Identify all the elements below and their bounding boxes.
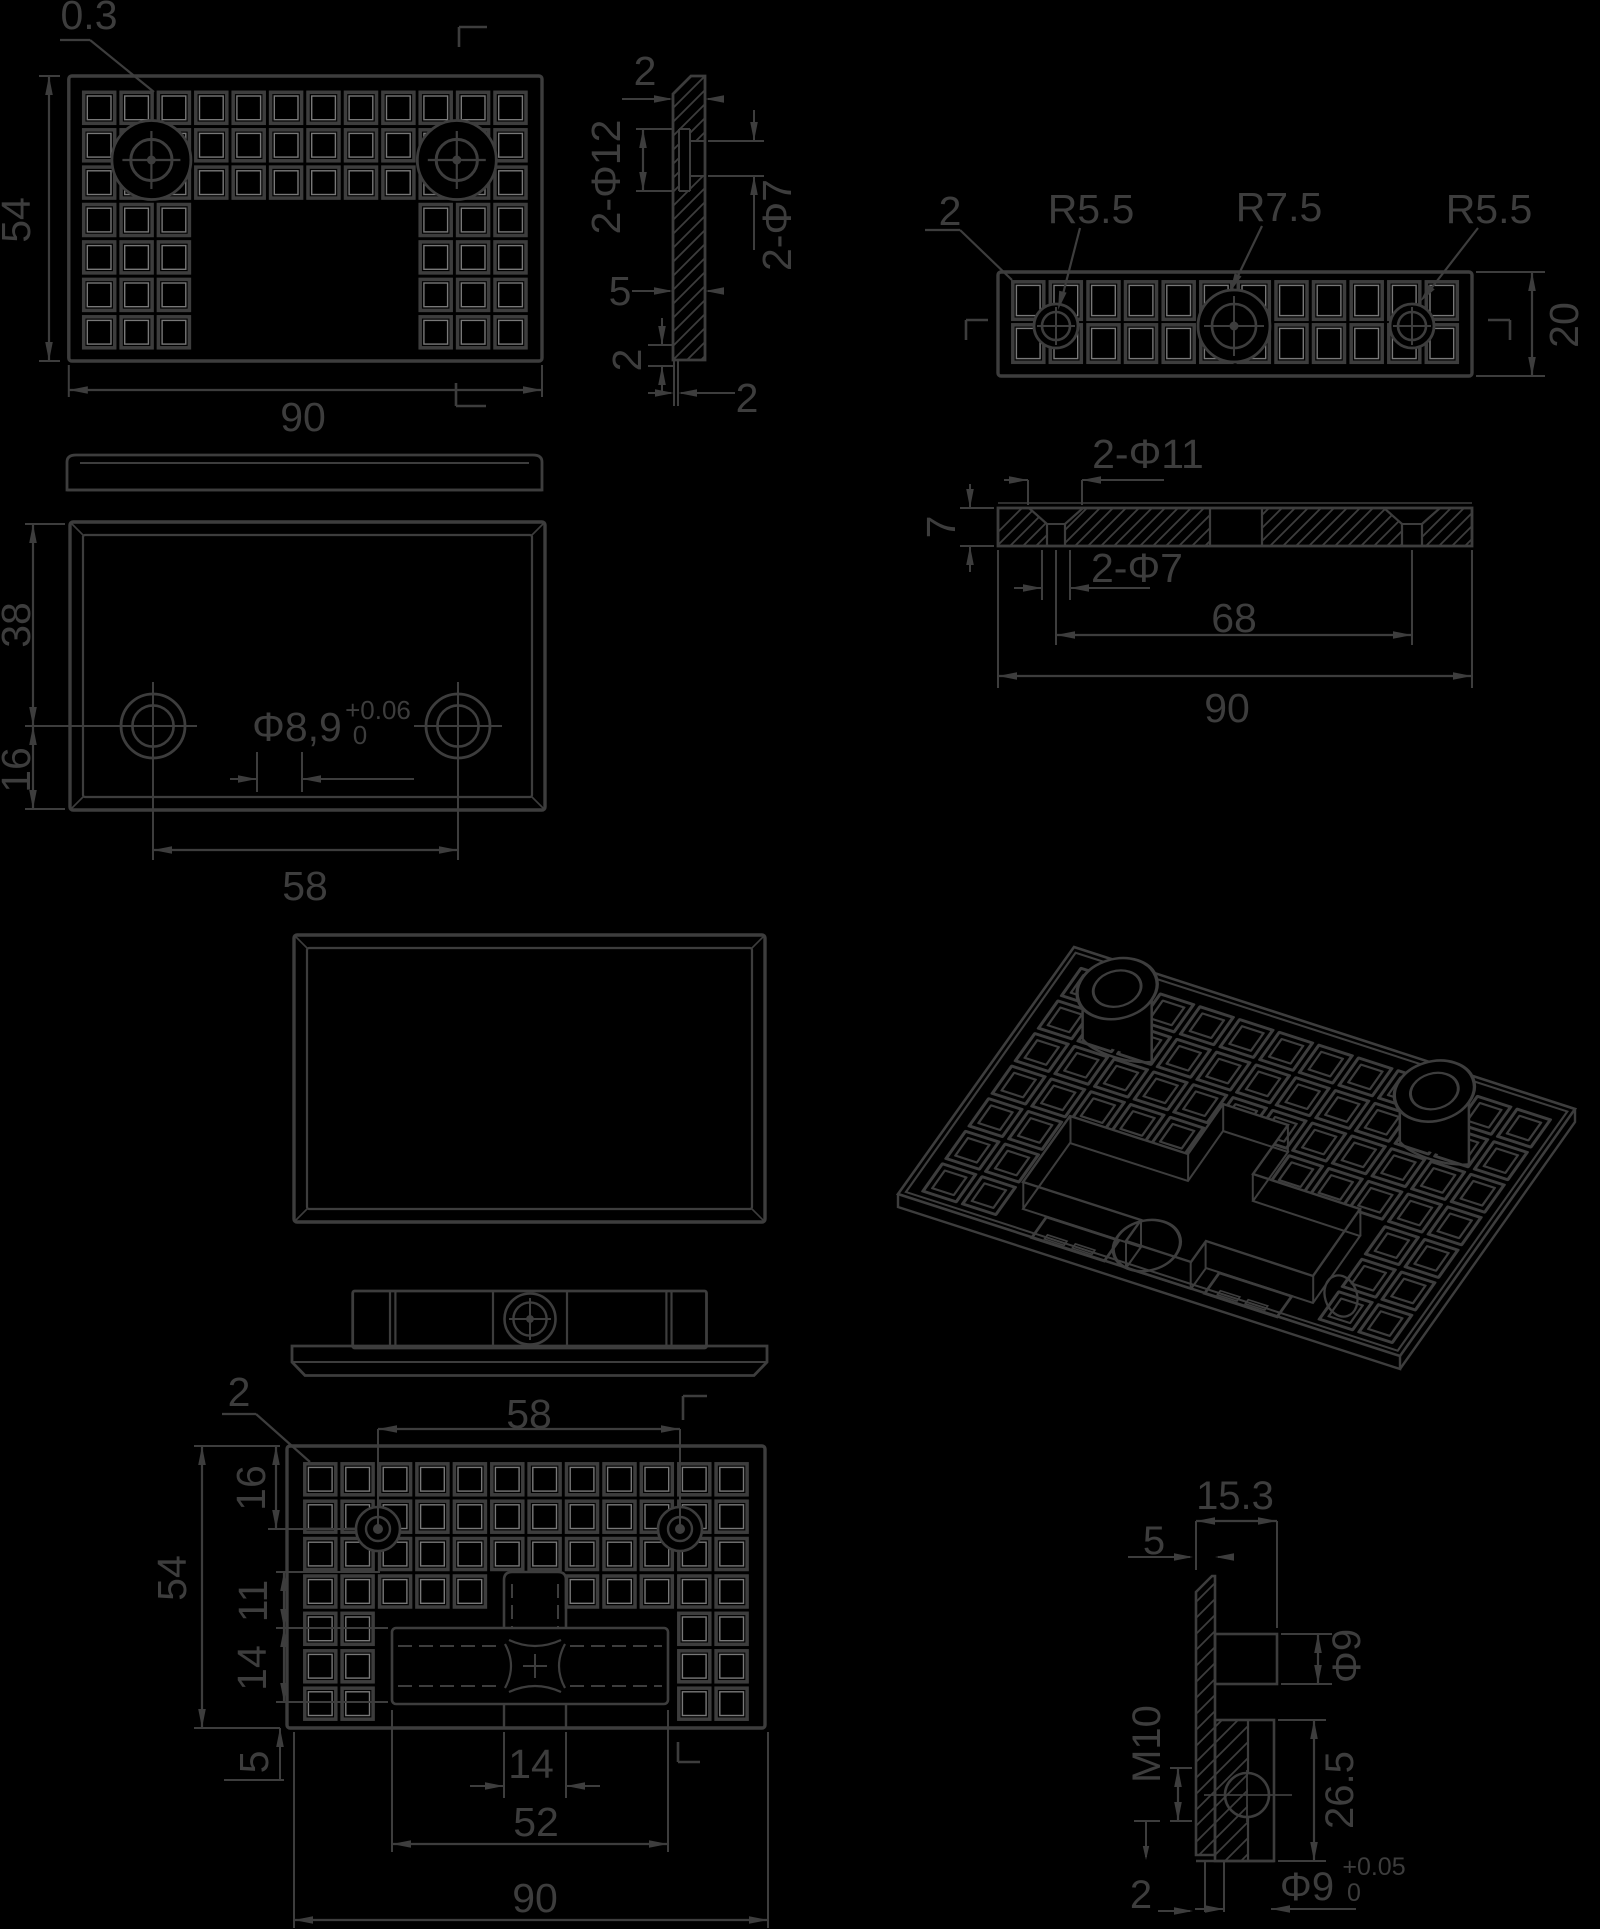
- svg-text:90: 90: [1204, 685, 1250, 731]
- svg-text:38: 38: [0, 602, 39, 648]
- svg-text:Φ9: Φ9: [1280, 1865, 1334, 1909]
- svg-text:2: 2: [1130, 1873, 1152, 1917]
- svg-text:R5.5: R5.5: [1446, 186, 1533, 232]
- svg-text:14: 14: [508, 1741, 554, 1787]
- svg-text:58: 58: [282, 863, 328, 909]
- svg-text:90: 90: [512, 1875, 558, 1921]
- svg-text:68: 68: [1211, 595, 1257, 641]
- svg-text:0.3: 0.3: [61, 0, 118, 38]
- svg-text:Φ9: Φ9: [1325, 1629, 1369, 1683]
- svg-text:2: 2: [228, 1369, 251, 1415]
- svg-text:58: 58: [506, 1391, 552, 1437]
- svg-text:7: 7: [918, 516, 964, 539]
- svg-text:15.3: 15.3: [1196, 1474, 1274, 1518]
- svg-text:2: 2: [939, 188, 962, 234]
- svg-text:26.5: 26.5: [1318, 1751, 1362, 1829]
- svg-text:0: 0: [353, 720, 367, 750]
- svg-text:0: 0: [1347, 1879, 1361, 1907]
- svg-text:90: 90: [280, 394, 326, 440]
- svg-text:2: 2: [736, 375, 759, 421]
- svg-text:16: 16: [0, 747, 39, 793]
- svg-text:R5.5: R5.5: [1048, 186, 1135, 232]
- svg-text:54: 54: [149, 1555, 195, 1601]
- svg-text:2: 2: [604, 349, 650, 372]
- svg-text:5: 5: [231, 1751, 277, 1774]
- svg-text:2: 2: [634, 48, 657, 94]
- svg-text:5: 5: [609, 268, 632, 314]
- svg-text:54: 54: [0, 197, 39, 243]
- svg-text:2-Φ7: 2-Φ7: [754, 179, 800, 271]
- svg-text:+0.05: +0.05: [1342, 1853, 1405, 1881]
- svg-text:Φ8,9: Φ8,9: [252, 704, 342, 750]
- svg-text:2-Φ7: 2-Φ7: [1091, 545, 1183, 591]
- svg-text:52: 52: [513, 1799, 559, 1845]
- svg-text:M10: M10: [1125, 1705, 1169, 1783]
- svg-text:2-Φ11: 2-Φ11: [1092, 431, 1204, 477]
- svg-text:R7.5: R7.5: [1236, 184, 1323, 230]
- svg-text:11: 11: [230, 1580, 276, 1623]
- svg-text:20: 20: [1541, 302, 1587, 348]
- svg-text:14: 14: [229, 1645, 275, 1691]
- svg-text:16: 16: [228, 1465, 274, 1511]
- svg-text:2-Φ12: 2-Φ12: [583, 120, 629, 235]
